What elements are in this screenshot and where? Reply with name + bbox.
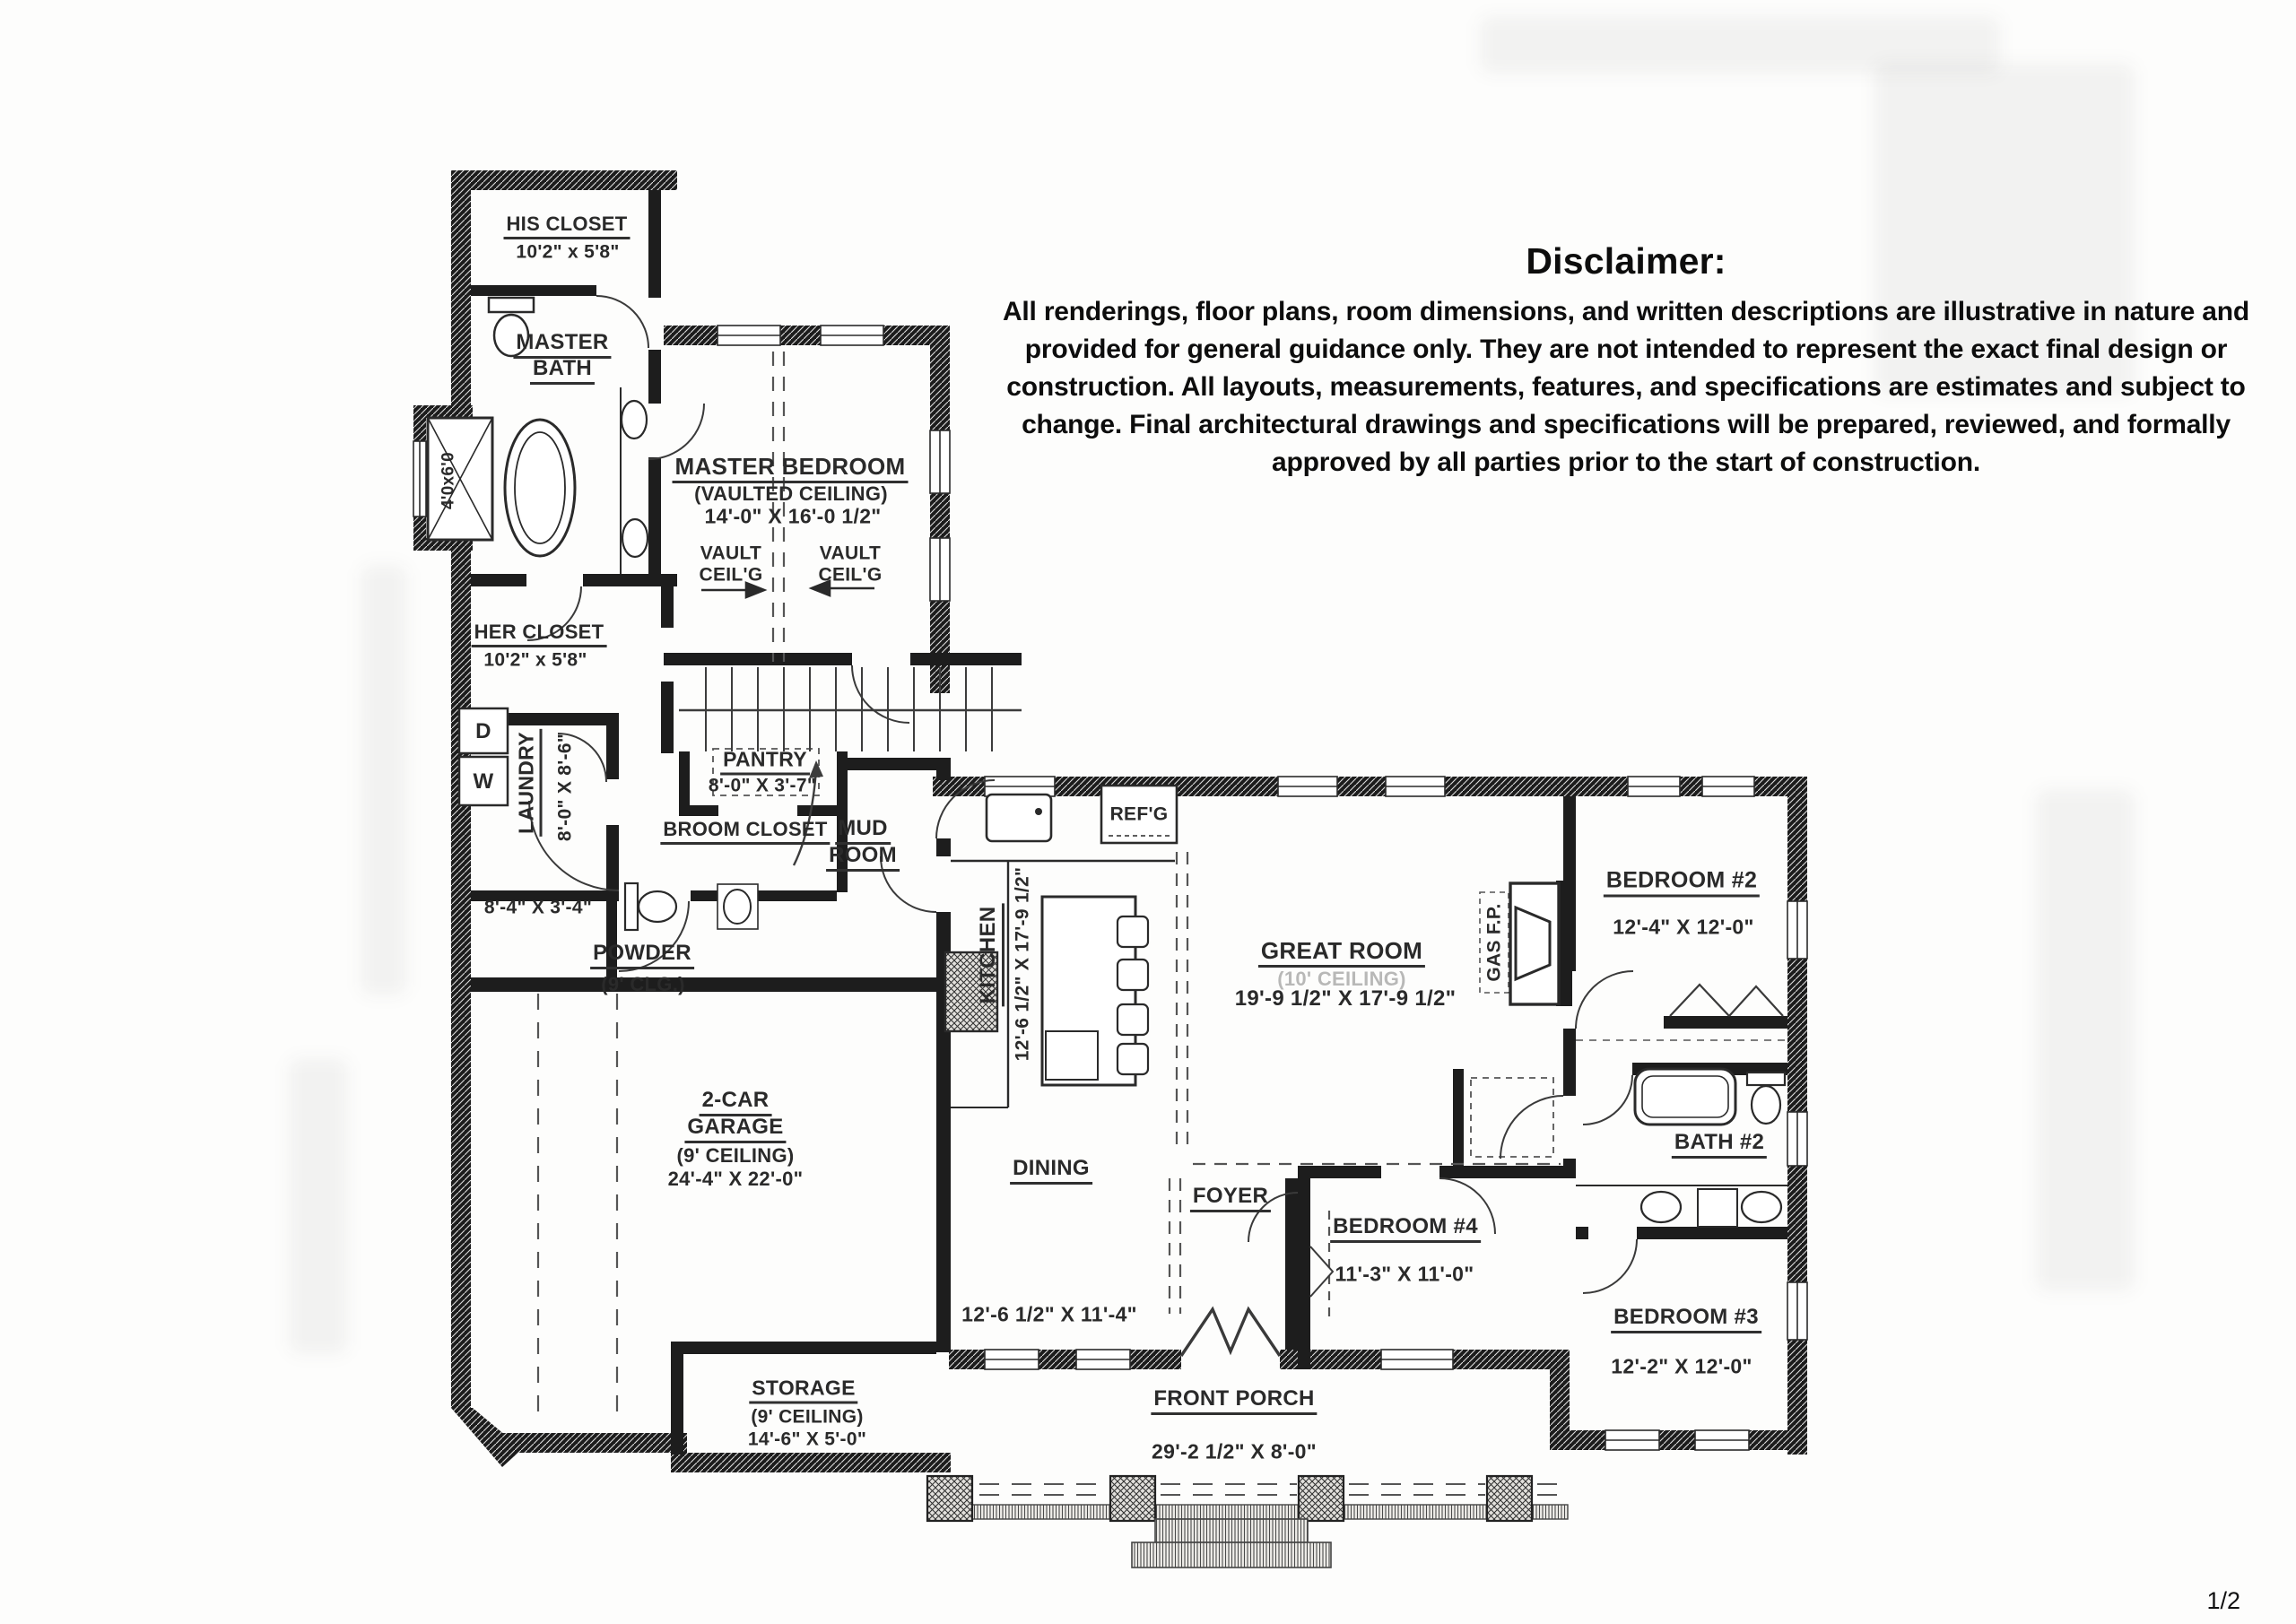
label-her-closet: HER CLOSET — [472, 622, 607, 647]
label-master-bath-line2: BATH — [530, 358, 595, 385]
dims-dining: 12'-6 1/2" X 11'-4" — [961, 1305, 1137, 1325]
label-broom-closet: BROOM CLOSET — [660, 820, 830, 845]
dims-bedroom3: 12'-2" X 12'-0" — [1611, 1357, 1752, 1377]
label-front-porch: FRONT PORCH — [1151, 1388, 1317, 1415]
label-bedroom2: BEDROOM #2 — [1604, 870, 1760, 898]
label-great-room: GREAT ROOM — [1258, 939, 1425, 968]
dims-pantry: 8'-0" X 3'-7" — [709, 777, 816, 795]
label-foyer: FOYER — [1190, 1185, 1271, 1212]
windows — [413, 326, 1807, 1450]
label-storage: STORAGE — [749, 1378, 857, 1404]
disclaimer-body: All renderings, floor plans, room dimens… — [967, 293, 2285, 482]
label-powder: POWDER — [590, 942, 694, 969]
dims-storage: 14'-6" X 5'-0" — [748, 1430, 866, 1449]
note-vault-left-line1: VAULT — [700, 544, 761, 563]
label-master-bath-line1: MASTER — [513, 332, 611, 359]
label-refrigerator: REF'G — [1110, 805, 1169, 824]
note-vault-left-line2: CEIL'G — [700, 566, 763, 585]
label-dryer: D — [475, 721, 491, 743]
label-laundry: LAUNDRY — [517, 729, 543, 837]
disclaimer-block: Disclaimer: All renderings, floor plans,… — [967, 240, 2285, 482]
dims-garage: 24'-4" X 22'-0" — [668, 1169, 804, 1189]
note-master-bedroom-ceiling: (VAULTED CEILING) — [694, 484, 888, 504]
dims-master-bedroom: 14'-0" X 16'-0 1/2" — [705, 507, 882, 527]
label-bedroom4: BEDROOM #4 — [1330, 1216, 1481, 1243]
label-mud-room-line1: MUD — [835, 818, 891, 845]
label-bedroom3: BEDROOM #3 — [1611, 1307, 1761, 1333]
label-master-bedroom: MASTER BEDROOM — [673, 455, 909, 483]
dims-great-room: 19'-9 1/2" X 17'-9 1/2" — [1235, 988, 1457, 1010]
dims-his-closet: 10'2" x 5'8" — [516, 243, 619, 262]
disclaimer-title: Disclaimer: — [967, 240, 2285, 282]
label-dining: DINING — [1010, 1158, 1092, 1185]
dims-hall-closet: 8'-4" X 3'-4" — [484, 899, 592, 917]
floor-plan-page: HIS CLOSET 10'2" x 5'8" MASTER BATH 4'0x… — [0, 0, 2296, 1624]
dims-laundry: 8'-0" X 8'-6" — [556, 734, 575, 841]
dims-shower: 4'0x6'0 — [440, 452, 457, 509]
dims-her-closet: 10'2" x 5'8" — [483, 651, 587, 670]
label-pantry: PANTRY — [720, 750, 810, 776]
dims-bedroom2: 12'-4" X 12'-0" — [1613, 917, 1753, 938]
label-bath2: BATH #2 — [1672, 1132, 1767, 1159]
page-number: 1/2 — [2206, 1587, 2240, 1615]
label-his-closet: HIS CLOSET — [503, 214, 630, 239]
dims-front-porch: 29'-2 1/2" X 8'-0" — [1152, 1442, 1317, 1463]
label-kitchen: KITCHEN — [978, 904, 1004, 1007]
label-mud-room-line2: ROOM — [826, 845, 900, 872]
note-vault-right-line1: VAULT — [820, 544, 881, 563]
label-washer: W — [474, 771, 494, 793]
label-garage-line1: 2-CAR — [700, 1090, 772, 1116]
note-garage-ceiling: (9' CEILING) — [676, 1146, 794, 1166]
note-powder-ceiling: (9' CLG.) — [601, 975, 684, 994]
note-vault-right-line2: CEIL'G — [819, 566, 883, 585]
dims-bedroom4: 11'-3" X 11'-0" — [1335, 1264, 1474, 1285]
label-gas-fireplace: GAS F.P. — [1485, 903, 1504, 981]
note-storage-ceiling: (9' CEILING) — [751, 1408, 863, 1427]
dims-kitchen: 12'-6 1/2" X 17'-9 1/2" — [1013, 867, 1032, 1062]
label-garage-line2: GARAGE — [684, 1116, 786, 1143]
front-porch-structure — [927, 1476, 1568, 1568]
